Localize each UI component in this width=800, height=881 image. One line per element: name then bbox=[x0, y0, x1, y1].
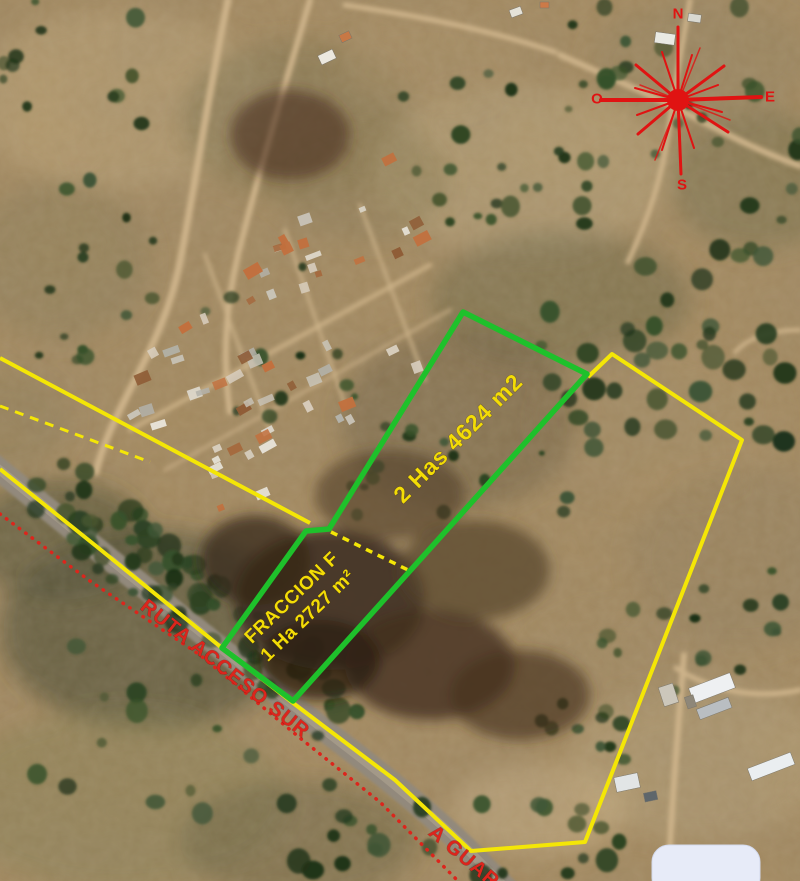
tree bbox=[596, 741, 606, 752]
tree bbox=[593, 821, 609, 834]
tree bbox=[224, 291, 240, 303]
tree bbox=[191, 674, 203, 687]
tree bbox=[483, 69, 493, 78]
tree bbox=[565, 106, 573, 113]
tree bbox=[581, 181, 592, 192]
tree bbox=[97, 738, 107, 748]
tree bbox=[324, 699, 335, 710]
compass-west-label: O bbox=[591, 91, 603, 108]
tree bbox=[701, 345, 724, 370]
compass-hub bbox=[667, 89, 689, 111]
compass-south-label: S bbox=[677, 177, 687, 194]
tree bbox=[57, 458, 70, 470]
tree bbox=[445, 217, 455, 226]
tree bbox=[560, 491, 575, 504]
tree bbox=[412, 166, 422, 177]
tree bbox=[262, 409, 278, 423]
tree bbox=[773, 362, 796, 384]
tree bbox=[646, 342, 668, 360]
tree bbox=[533, 183, 543, 192]
tree bbox=[597, 68, 617, 89]
tree bbox=[491, 199, 503, 209]
tree bbox=[505, 83, 518, 97]
tree bbox=[647, 388, 668, 410]
tree bbox=[689, 614, 700, 623]
tree bbox=[100, 692, 109, 701]
tree bbox=[212, 725, 222, 732]
tree bbox=[6, 58, 20, 71]
compass-north-label: N bbox=[673, 6, 684, 23]
tree bbox=[709, 239, 730, 261]
tree bbox=[568, 20, 578, 29]
tree bbox=[695, 650, 712, 666]
tree bbox=[756, 323, 777, 344]
tree bbox=[366, 824, 377, 835]
tree bbox=[107, 91, 119, 102]
tree bbox=[624, 418, 640, 436]
tree bbox=[148, 523, 163, 538]
tree bbox=[35, 352, 44, 359]
tree bbox=[125, 553, 141, 571]
tree bbox=[776, 216, 786, 224]
satellite-map-stage: 2 Has 4624 m2 FRACCION F 1 Ha 2727 m² RU… bbox=[0, 0, 800, 881]
tree bbox=[77, 345, 88, 354]
tree bbox=[79, 243, 89, 252]
tree bbox=[606, 382, 622, 399]
tree bbox=[773, 431, 795, 452]
tree bbox=[691, 268, 713, 290]
tree bbox=[432, 193, 447, 207]
tree bbox=[561, 867, 575, 879]
tree bbox=[582, 377, 606, 400]
tree bbox=[501, 196, 520, 218]
tree bbox=[148, 562, 164, 576]
tree bbox=[277, 794, 297, 814]
tree bbox=[620, 322, 635, 336]
tree bbox=[597, 155, 609, 168]
tree bbox=[78, 252, 89, 263]
tree bbox=[75, 463, 94, 481]
tree bbox=[473, 213, 482, 220]
tree bbox=[67, 638, 86, 654]
tree bbox=[296, 352, 306, 360]
tree bbox=[126, 699, 148, 723]
tree bbox=[149, 237, 157, 245]
tree bbox=[451, 125, 470, 144]
tree bbox=[597, 638, 608, 649]
tree bbox=[731, 248, 750, 263]
compass-east-label: E bbox=[765, 89, 775, 106]
watermark-card bbox=[652, 845, 760, 881]
tree bbox=[145, 292, 160, 304]
tree bbox=[65, 491, 75, 501]
tree bbox=[572, 724, 584, 734]
tree bbox=[723, 359, 746, 380]
tree bbox=[274, 391, 288, 406]
tree bbox=[740, 197, 760, 213]
tree bbox=[626, 602, 641, 617]
tree bbox=[339, 379, 354, 391]
tree bbox=[146, 795, 166, 810]
tree bbox=[168, 583, 178, 591]
tree bbox=[322, 778, 337, 791]
tree bbox=[76, 481, 93, 500]
tree bbox=[574, 803, 589, 816]
tree bbox=[128, 588, 138, 596]
tree bbox=[405, 424, 418, 436]
tree bbox=[772, 594, 789, 611]
tree bbox=[520, 184, 529, 193]
tree bbox=[450, 77, 466, 90]
tree bbox=[530, 797, 547, 813]
tree bbox=[557, 506, 570, 518]
tree bbox=[577, 152, 594, 171]
tree bbox=[287, 848, 311, 873]
tree bbox=[584, 438, 603, 457]
tree bbox=[185, 785, 195, 797]
tree bbox=[486, 214, 497, 225]
tree bbox=[584, 422, 601, 438]
tree bbox=[540, 301, 560, 323]
tree bbox=[243, 748, 259, 763]
tree bbox=[689, 381, 713, 403]
tree bbox=[576, 217, 593, 230]
tree bbox=[671, 343, 687, 359]
tree bbox=[712, 137, 724, 147]
tree bbox=[298, 263, 306, 272]
tree bbox=[734, 665, 746, 675]
tree bbox=[568, 410, 588, 426]
tree bbox=[125, 69, 138, 84]
tree bbox=[92, 563, 104, 574]
tree bbox=[82, 514, 99, 527]
tree bbox=[207, 598, 220, 611]
tree bbox=[595, 712, 609, 723]
tree bbox=[612, 834, 627, 850]
tree bbox=[596, 848, 618, 872]
tree bbox=[752, 425, 775, 444]
tree bbox=[334, 856, 351, 871]
tree bbox=[660, 292, 674, 307]
tree bbox=[699, 430, 712, 441]
tree bbox=[539, 451, 545, 456]
tree bbox=[634, 257, 657, 276]
tree bbox=[743, 599, 759, 612]
tree bbox=[122, 213, 131, 223]
tree bbox=[116, 260, 133, 278]
tree bbox=[573, 196, 592, 215]
tree bbox=[753, 246, 773, 266]
tree bbox=[543, 373, 562, 391]
tree bbox=[27, 764, 47, 785]
tree bbox=[578, 853, 589, 863]
tree bbox=[473, 795, 491, 813]
tree bbox=[35, 26, 46, 35]
tree bbox=[763, 349, 778, 366]
tree bbox=[72, 543, 92, 560]
tree bbox=[497, 163, 506, 171]
tree bbox=[444, 164, 458, 176]
tree bbox=[125, 535, 138, 545]
tree bbox=[613, 648, 622, 658]
tree bbox=[568, 816, 587, 833]
tree bbox=[739, 393, 756, 409]
tree bbox=[312, 731, 324, 741]
tree bbox=[764, 622, 781, 637]
tree bbox=[577, 343, 599, 364]
tree bbox=[744, 418, 754, 426]
tree bbox=[121, 310, 132, 320]
tree bbox=[554, 147, 564, 156]
tree bbox=[134, 117, 150, 131]
tree bbox=[646, 316, 663, 335]
tree bbox=[58, 778, 76, 795]
tree bbox=[83, 173, 96, 188]
tree bbox=[656, 607, 672, 620]
tree bbox=[60, 333, 69, 340]
tree bbox=[786, 183, 798, 195]
tree bbox=[398, 91, 409, 101]
satellite-map: 2 Has 4624 m2 FRACCION F 1 Ha 2727 m² RU… bbox=[0, 0, 800, 881]
tree bbox=[579, 80, 588, 88]
tree bbox=[367, 833, 390, 857]
tree bbox=[699, 584, 710, 593]
tree bbox=[349, 704, 365, 719]
tree bbox=[654, 419, 677, 439]
tree bbox=[703, 327, 716, 341]
tree bbox=[110, 511, 127, 530]
tree bbox=[767, 567, 777, 575]
tree bbox=[192, 802, 213, 824]
tree bbox=[22, 101, 32, 111]
tree bbox=[106, 574, 119, 584]
tree bbox=[335, 809, 353, 823]
tree bbox=[27, 478, 46, 493]
tree bbox=[126, 8, 145, 28]
tree bbox=[332, 349, 343, 360]
tree bbox=[59, 182, 75, 195]
tree bbox=[327, 829, 340, 842]
tree bbox=[44, 285, 55, 294]
tree bbox=[620, 36, 631, 48]
tree bbox=[604, 742, 616, 753]
